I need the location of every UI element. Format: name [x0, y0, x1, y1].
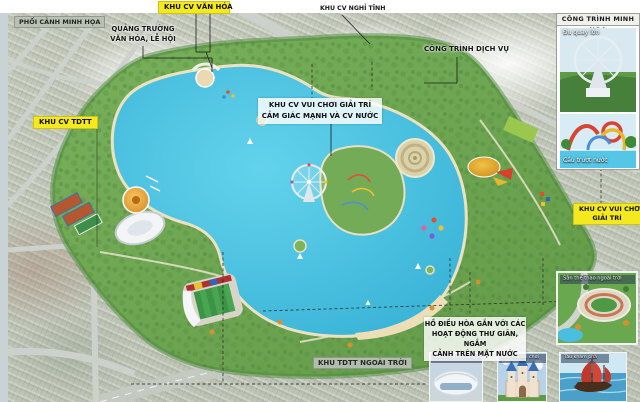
thumbnail-caption-ship: Tàu khám phá	[561, 354, 609, 363]
thumbnail-caption-slide: Cầu trượt nước	[563, 158, 608, 165]
thumbnail-ferris-wheel: Đu quay lớn	[560, 28, 636, 112]
orange-plaza-shape	[123, 187, 149, 213]
island-shape	[320, 146, 404, 234]
sidebar-title: CÔNG TRÌNH MINH HỌA	[557, 14, 639, 26]
annotation-cong-trinh-dich-vu: CÔNG TRÌNH DỊCH VỤ	[424, 45, 509, 53]
mosaic-plaza-shape	[396, 139, 434, 177]
map-svg	[0, 0, 640, 402]
masterplan-screenshot: KHU CV VĂN HÓA KHU CV NGHỈ TĨNH PHỐI CẢN…	[0, 0, 640, 402]
annotation-box-ho-dieu-hoa: HỒ ĐIỀU HÒA GẮN VỚI CÁC HOẠT ĐỘNG THƯ GI…	[424, 317, 526, 361]
thumbnail-caption-stadium: Sân thể thao ngoài trời	[560, 275, 635, 284]
label-phoi-canh-minh-hoa: PHỐI CẢNH MINH HỌA	[14, 16, 105, 28]
label-khu-cv-tdtt: KHU CV TDTT	[33, 116, 98, 129]
label-khu-cv-van-hoa: KHU CV VĂN HÓA	[158, 1, 230, 14]
thumbnail-ship: Tàu khám phá	[559, 352, 627, 402]
label-khu-cv-nghi-tinh: KHU CV NGHỈ TĨNH	[320, 5, 385, 12]
left-margin-strip	[0, 13, 8, 402]
thumbnail-water-slide: Cầu trượt nước	[560, 114, 636, 168]
label-khu-cv-vui-choi-giai-tri: KHU CV VUI CHƠI GIẢI TRÍ	[573, 203, 640, 225]
ferris-wheel-image	[560, 28, 636, 112]
label-khu-tdtt-ngoai-troi: KHU TDTT NGOÀI TRỜI	[313, 357, 412, 369]
annotation-box-vui-choi-giai-tri: KHU CV VUI CHƠI GIẢI TRÍ CẢM GIÁC MẠNH V…	[258, 98, 382, 124]
annotation-quang-truong: QUẢNG TRƯỜNG VĂN HÓA, LỄ HỘI	[110, 24, 176, 44]
thumbnail-caption-ferris: Đu quay lớn	[563, 30, 599, 37]
thumbnail-stadium: Sân thể thao ngoài trời	[556, 271, 638, 345]
sidebar-panel: CÔNG TRÌNH MINH HỌA Đu quay lớn	[556, 13, 640, 170]
